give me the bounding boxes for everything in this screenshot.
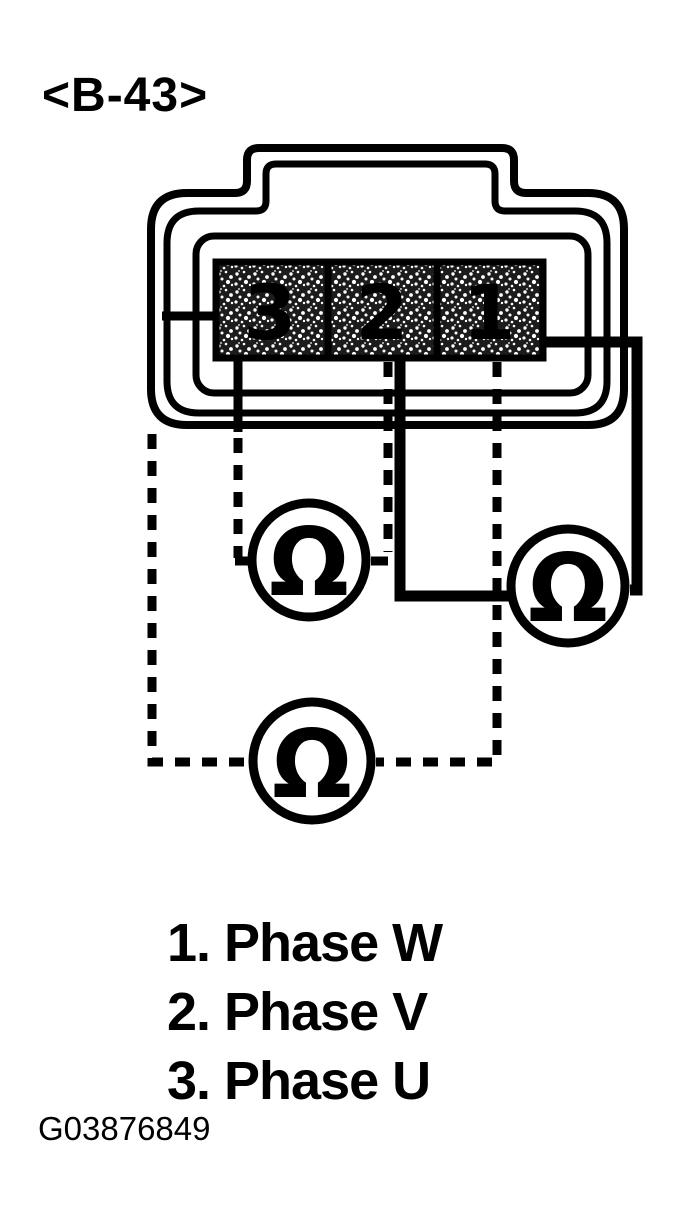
ohmmeter-2-symbol: Ω	[528, 535, 608, 644]
terminal-2-label: 2	[356, 268, 409, 357]
page: <B-43> 3 2 1	[0, 0, 679, 1212]
legend: 1. Phase W 2. Phase V 3. Phase U	[167, 908, 442, 1115]
figure-id: G03876849	[38, 1110, 211, 1148]
legend-item-phase-v: 2. Phase V	[167, 977, 442, 1046]
ohmmeter-1-symbol: Ω	[269, 509, 349, 618]
legend-item-phase-w: 1. Phase W	[167, 908, 442, 977]
terminal-1-label: 1	[463, 268, 516, 357]
terminal-3-label: 3	[244, 268, 297, 357]
ohmmeter-3-symbol: Ω	[272, 711, 352, 820]
legend-item-phase-u: 3. Phase U	[167, 1046, 442, 1115]
wire-terminal3-to-meter3-dashed	[152, 434, 249, 762]
